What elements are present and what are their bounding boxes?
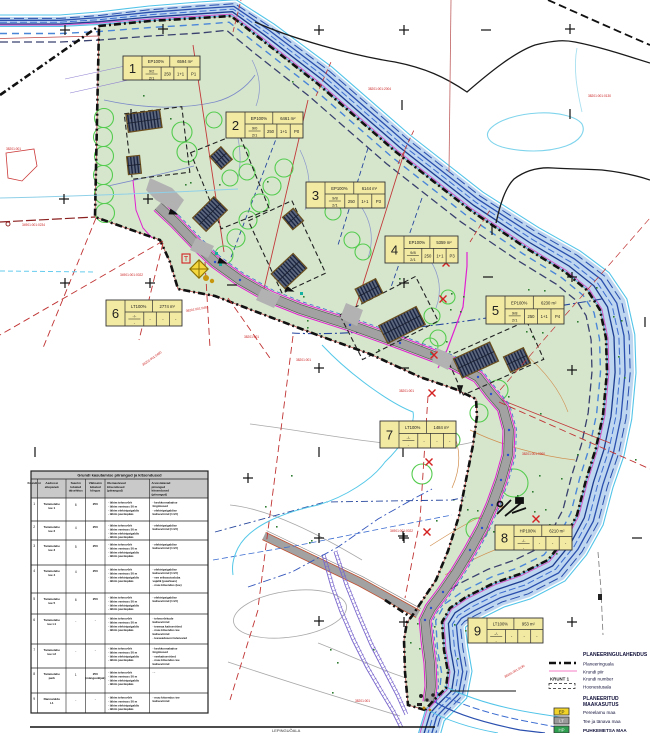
svg-text:34901:001:0022: 34901:001:0022: [390, 529, 413, 533]
svg-text:kaitsevöönd (1 kV): kaitsevöönd (1 kV): [153, 546, 179, 550]
svg-text:tee L2: tee L2: [47, 652, 56, 656]
svg-text:T: T: [184, 256, 189, 263]
svg-text:P3: P3: [376, 199, 382, 204]
svg-text:1+1: 1+1: [280, 129, 288, 134]
svg-text:LT: LT: [559, 719, 564, 724]
svg-text:täisehitus: täisehitus: [69, 489, 83, 493]
svg-text:tee 5: tee 5: [48, 601, 55, 605]
svg-text:- lähim juurdepääs: - lähim juurdepääs: [108, 658, 134, 662]
svg-text:9/2: 9/2: [149, 69, 155, 74]
svg-text:4: 4: [391, 243, 398, 258]
svg-text:-: -: [75, 649, 76, 653]
svg-text:-: -: [75, 698, 76, 702]
svg-text:tee 4: tee 4: [48, 573, 55, 577]
svg-text:PLANEERINGULAHENDUS: PLANEERINGULAHENDUS: [583, 652, 648, 658]
svg-text:P3: P3: [450, 254, 456, 259]
svg-text:ettepanek: ettepanek: [45, 485, 59, 489]
svg-text:park: park: [49, 676, 56, 680]
svg-text:250: 250: [93, 544, 98, 548]
svg-text:953 m²: 953 m²: [522, 622, 536, 627]
svg-text:38201:001: 38201:001: [244, 335, 259, 339]
svg-text:kaitsevöönd (1 kV): kaitsevöönd (1 kV): [153, 512, 179, 516]
svg-text:2: 2: [232, 118, 239, 133]
svg-text:250: 250: [93, 569, 98, 573]
svg-text:-: -: [95, 697, 96, 701]
svg-text:7: 7: [386, 428, 393, 443]
svg-text:PUHKEMETSA MAA: PUHKEMETSA MAA: [583, 728, 627, 733]
svg-text:P1: P1: [191, 71, 197, 76]
svg-text:250: 250: [93, 597, 98, 601]
svg-text:-/-: -/-: [522, 538, 526, 543]
svg-text:- lähim juurdepääs: - lähim juurdepääs: [108, 628, 134, 632]
svg-text:tee 3: tee 3: [48, 548, 55, 552]
svg-text:250: 250: [93, 525, 98, 529]
svg-text:(piirangud): (piirangud): [152, 492, 168, 496]
svg-text:-: -: [95, 618, 96, 622]
svg-text:9/8: 9/8: [332, 196, 338, 201]
svg-text:(mänguväljak): (mänguväljak): [85, 676, 105, 680]
svg-text:250: 250: [528, 314, 536, 319]
svg-text:EP100%: EP100%: [251, 116, 268, 121]
svg-text:2/1: 2/1: [149, 76, 155, 81]
svg-text:6: 6: [75, 503, 77, 507]
svg-text:1+1: 1+1: [361, 199, 369, 204]
svg-text:tee 1: tee 1: [48, 506, 55, 510]
svg-text:1+1: 1+1: [436, 254, 444, 259]
svg-text:9/8: 9/8: [512, 310, 518, 315]
svg-text:1: 1: [33, 502, 35, 506]
svg-text:5: 5: [492, 303, 499, 318]
svg-text:38201:001:0130: 38201:001:0130: [588, 94, 611, 98]
svg-text:9/8: 9/8: [410, 250, 416, 255]
svg-text:1484 m²: 1484 m²: [434, 425, 450, 430]
svg-text:38201:001:0960: 38201:001:0960: [522, 452, 545, 456]
svg-text:- lähim juurdepääs: - lähim juurdepääs: [108, 579, 134, 583]
svg-text:6: 6: [112, 306, 119, 321]
svg-text:250: 250: [348, 199, 356, 204]
svg-text:250: 250: [93, 502, 98, 506]
svg-text:L1: L1: [50, 701, 54, 705]
svg-text:Pereelamu maa: Pereelamu maa: [583, 710, 616, 715]
svg-text:EP100%: EP100%: [331, 186, 348, 191]
svg-text:Planeeringuala: Planeeringuala: [583, 662, 614, 667]
svg-text:HP: HP: [558, 728, 564, 733]
svg-text:2/1: 2/1: [410, 257, 416, 262]
svg-text:6594 m²: 6594 m²: [177, 59, 193, 64]
svg-text:- lähim juurdepääs: - lähim juurdepääs: [108, 707, 134, 711]
svg-text:8: 8: [33, 672, 35, 676]
svg-text:3: 3: [33, 544, 35, 548]
svg-text:LT100%: LT100%: [131, 304, 147, 309]
svg-text:4: 4: [75, 570, 77, 574]
svg-text:kaitsevöönd: kaitsevöönd: [153, 699, 170, 703]
svg-text:38201:001: 38201:001: [399, 389, 414, 393]
svg-text:EP100%: EP100%: [148, 59, 165, 64]
svg-text:6: 6: [33, 618, 35, 622]
svg-text:250: 250: [424, 254, 432, 259]
svg-text:Krundi piir: Krundi piir: [583, 670, 604, 675]
svg-text:5: 5: [75, 545, 77, 549]
svg-text:kaitsevöönd (1 kV): kaitsevöönd (1 kV): [153, 599, 179, 603]
svg-text:- lähim juurdepääs: - lähim juurdepääs: [108, 554, 134, 558]
svg-text:7: 7: [33, 648, 35, 652]
svg-text:1+1: 1+1: [541, 314, 549, 319]
svg-text:Grundi kasutamise piirangud ja: Grundi kasutamise piirangud ja kitsendus…: [77, 473, 162, 478]
svg-text:P4: P4: [555, 314, 561, 319]
svg-text:2/1: 2/1: [512, 317, 518, 322]
svg-text:3: 3: [312, 188, 319, 203]
svg-text:LEPINGUÕALA: LEPINGUÕALA: [272, 728, 301, 733]
svg-text:LT100%: LT100%: [493, 622, 509, 627]
svg-text:6210 m²: 6210 m²: [549, 529, 565, 534]
svg-text:KRUNT 1: KRUNT 1: [550, 677, 570, 682]
svg-text:9/0: 9/0: [252, 126, 258, 131]
svg-text:2/1: 2/1: [332, 203, 338, 208]
svg-text:-/-: -/-: [133, 314, 137, 319]
svg-text:- muu kitsendus (tee): - muu kitsendus (tee): [153, 583, 182, 587]
svg-text:6: 6: [75, 598, 77, 602]
svg-text:- lähim juurdepääs: - lähim juurdepääs: [108, 607, 134, 611]
svg-text:Hoonestusala: Hoonestusala: [583, 685, 612, 690]
svg-text:1: 1: [75, 673, 77, 677]
svg-text:Tee ja tänava maa: Tee ja tänava maa: [583, 719, 621, 724]
svg-text:- lähim juurdepääs: - lähim juurdepääs: [108, 512, 134, 516]
svg-text:- teeseadusest tulenevad: - teeseadusest tulenevad: [153, 636, 188, 640]
svg-text:EP100%: EP100%: [409, 240, 426, 245]
svg-text:38201:001: 38201:001: [296, 358, 311, 362]
svg-text:kaitsevöönd (1 kV): kaitsevöönd (1 kV): [153, 527, 179, 531]
svg-text:-: -: [75, 619, 76, 623]
svg-text:kõrgus: kõrgus: [90, 489, 100, 493]
svg-text:34901:001:0234: 34901:001:0234: [22, 223, 45, 227]
svg-text:5: 5: [33, 597, 35, 601]
svg-text:9: 9: [33, 697, 35, 701]
svg-text:38201:001: 38201:001: [355, 699, 370, 703]
svg-text:4: 4: [75, 526, 77, 530]
svg-text:5359 m²: 5359 m²: [436, 240, 452, 245]
svg-text:Krundi nr: Krundi nr: [28, 481, 42, 485]
svg-text:250: 250: [164, 71, 172, 76]
svg-text:4: 4: [33, 569, 35, 573]
svg-text:38201:001: 38201:001: [6, 147, 21, 151]
svg-text:2774 m²: 2774 m²: [160, 304, 176, 309]
svg-text:MAAKASUTUS: MAAKASUTUS: [583, 702, 619, 708]
svg-text:6144 m²: 6144 m²: [362, 186, 378, 191]
svg-text:1+1: 1+1: [177, 71, 185, 76]
svg-text:(piirangud): (piirangud): [107, 489, 123, 493]
svg-text:2/1: 2/1: [252, 133, 258, 138]
svg-text:EP: EP: [559, 710, 565, 715]
svg-text:- lähim juurdepääs: - lähim juurdepääs: [108, 535, 134, 539]
svg-text:EP100%: EP100%: [511, 300, 528, 305]
svg-text:tee 2: tee 2: [48, 529, 55, 533]
svg-text:HP100%: HP100%: [520, 529, 537, 534]
svg-text:- -: - -: [153, 671, 156, 675]
svg-text:8: 8: [501, 531, 508, 546]
svg-text:9: 9: [474, 624, 481, 639]
svg-text:Krundi number: Krundi number: [583, 677, 614, 682]
svg-text:- lähim juurdepääs: - lähim juurdepääs: [108, 682, 134, 686]
svg-text:kaitsevöönd: kaitsevöönd: [153, 662, 170, 666]
svg-text:6461 m²: 6461 m²: [280, 116, 296, 121]
svg-text:tee L1: tee L1: [47, 622, 56, 626]
svg-text:6230 m²: 6230 m²: [541, 300, 557, 305]
svg-text:1: 1: [129, 61, 136, 76]
svg-text:-: -: [95, 648, 96, 652]
svg-text:2: 2: [33, 525, 35, 529]
svg-text:250: 250: [267, 129, 275, 134]
svg-text:34901:001:0022: 34901:001:0022: [120, 273, 143, 277]
svg-text:LT100%: LT100%: [405, 425, 421, 430]
svg-text:P0: P0: [294, 129, 300, 134]
svg-text:-/-: -/-: [494, 631, 498, 636]
svg-text:-/-: -/-: [407, 435, 411, 440]
svg-text:38201:001:2004: 38201:001:2004: [368, 87, 391, 91]
